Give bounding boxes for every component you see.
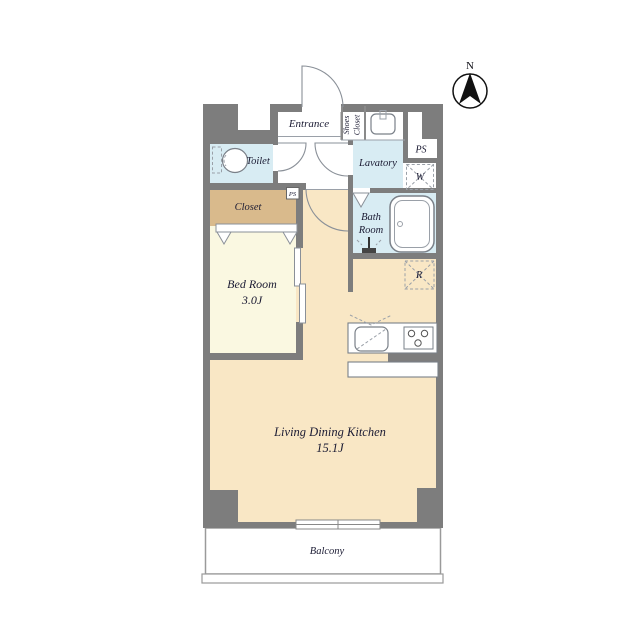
bedroom-size-label: 3.0J bbox=[241, 293, 263, 307]
wall-toilet-top bbox=[210, 140, 278, 144]
floor-plan-page: N Entrance Shoes Closet Toilet Lavatory … bbox=[0, 0, 640, 640]
balcony-label: Balcony bbox=[310, 546, 345, 557]
bath-label-1: Bath bbox=[361, 212, 381, 223]
exterior-notch-topright bbox=[408, 112, 422, 139]
bathtub-icon bbox=[390, 196, 434, 252]
balcony-window bbox=[296, 520, 380, 529]
wall-right-outer bbox=[436, 104, 443, 528]
compass-north-icon: N bbox=[453, 60, 487, 108]
kitchen-counter bbox=[348, 315, 438, 377]
wall-bath-bottom bbox=[348, 253, 443, 259]
shoes-closet-label-1: Shoes bbox=[342, 116, 351, 135]
bath-door-opening bbox=[353, 188, 370, 193]
bedroom-name-label: Bed Room bbox=[227, 277, 277, 291]
lavatory-door-opening bbox=[348, 145, 353, 175]
entrance-door-arc bbox=[302, 66, 343, 107]
pipe-space-top-label: PS bbox=[414, 145, 426, 156]
closet-label: Closet bbox=[235, 202, 263, 213]
ldk-size-label: 15.1J bbox=[316, 441, 345, 455]
kitchen-front-counter bbox=[348, 362, 438, 377]
refrigerator-label: R bbox=[415, 270, 422, 281]
washbasin-icon bbox=[371, 111, 395, 135]
entrance-door-opening bbox=[302, 102, 341, 112]
sliding-door-panel-1 bbox=[295, 248, 301, 286]
wall-left-outer bbox=[203, 104, 210, 528]
bath-label-2: Room bbox=[358, 225, 384, 236]
wall-shoes-right-line bbox=[364, 106, 366, 140]
compass-north-label: N bbox=[466, 60, 474, 72]
floor-plan-drawing: N Entrance Shoes Closet Toilet Lavatory … bbox=[0, 0, 640, 640]
wall-bath-west bbox=[348, 193, 353, 292]
entrance-label: Entrance bbox=[288, 118, 329, 130]
ldk-name-label: Living Dining Kitchen bbox=[273, 425, 386, 439]
exterior-notch-topleft bbox=[238, 100, 270, 130]
wall-bedroom-bottom bbox=[203, 353, 303, 360]
balcony-railing bbox=[202, 574, 443, 583]
lavatory-label: Lavatory bbox=[358, 158, 397, 169]
closet-folding-door bbox=[216, 224, 297, 232]
sliding-door-panel-2 bbox=[300, 284, 306, 323]
pipe-space-small-label: PS bbox=[288, 191, 297, 198]
shoes-closet-label-2: Closet bbox=[353, 114, 362, 135]
wall-kitchen-low bbox=[388, 353, 443, 362]
stove-icon bbox=[404, 327, 433, 349]
toilet-label: Toilet bbox=[246, 156, 271, 167]
toilet-door-opening bbox=[273, 145, 278, 171]
